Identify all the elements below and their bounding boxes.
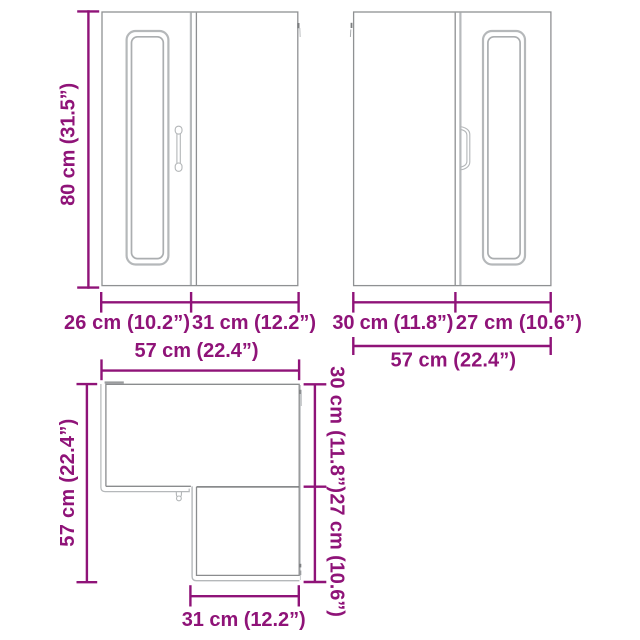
- svg-text:57 cm (22.4”): 57 cm (22.4”): [391, 350, 517, 372]
- svg-text:31 cm (12.2”): 31 cm (12.2”): [182, 609, 306, 631]
- svg-text:26 cm (10.2”): 26 cm (10.2”): [64, 312, 190, 334]
- svg-text:80 cm (31.5”): 80 cm (31.5”): [57, 83, 79, 206]
- svg-text:57 cm (22.4”): 57 cm (22.4”): [135, 340, 259, 362]
- svg-text:57 cm (22.4”): 57 cm (22.4”): [57, 419, 79, 547]
- svg-text:30 cm (11.8”): 30 cm (11.8”): [325, 366, 347, 493]
- svg-text:30 cm (11.8”): 30 cm (11.8”): [332, 312, 453, 334]
- svg-text:31 cm (12.2”): 31 cm (12.2”): [192, 312, 316, 334]
- svg-text:27 cm (10.6”): 27 cm (10.6”): [456, 312, 582, 334]
- svg-text:27 cm (10.6”): 27 cm (10.6”): [325, 493, 347, 617]
